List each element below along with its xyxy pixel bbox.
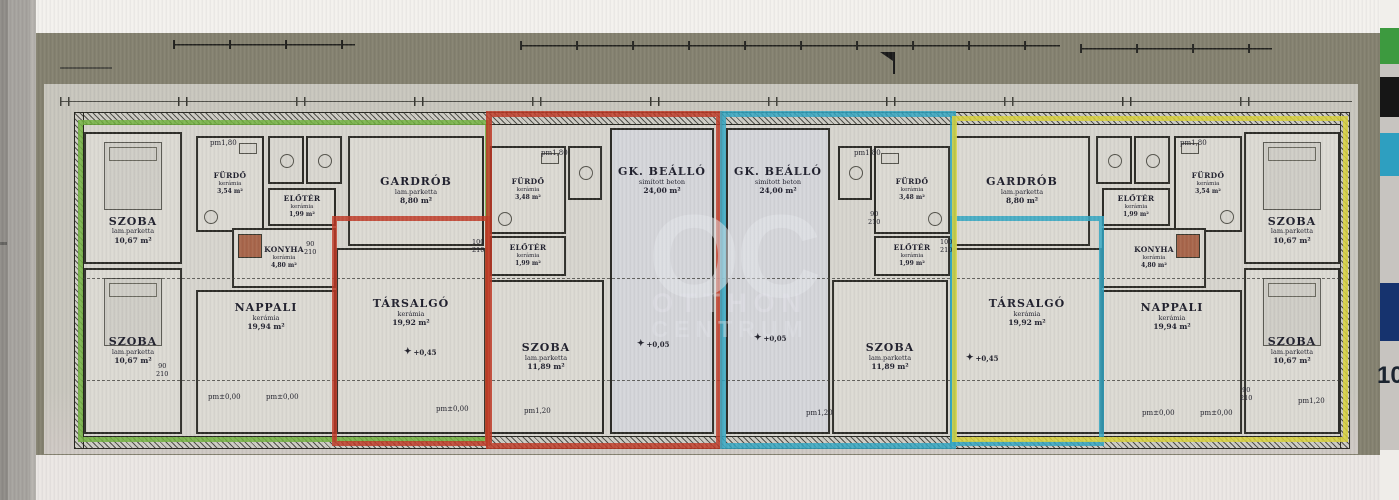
exterior-wall-bottom: [74, 436, 1350, 449]
room-name: GK. BEÁLLÓ: [618, 166, 706, 179]
level-label: pm1,80: [210, 140, 237, 147]
room-name: SZOBA: [1268, 336, 1316, 349]
room-eloter: ELŐTÉR kerámia 1,99 m²: [490, 236, 566, 276]
toilet-fixture: [928, 212, 942, 226]
room-floor: kerámia: [901, 253, 924, 260]
room-szoba: SZOBA lam.parketta 11,89 m²: [832, 280, 948, 434]
room-area: 8,80 m²: [1006, 196, 1038, 206]
level-marker: ✦ +0,45: [966, 354, 998, 363]
door-width: 100: [940, 238, 952, 246]
diamond-icon: ✦: [966, 354, 974, 363]
door-dimension: 90 210: [304, 240, 316, 256]
level-label: pm±0,00: [436, 406, 469, 413]
room-szoba: SZOBA lam.parketta 10,67 m²: [84, 268, 182, 434]
door-width: 90: [306, 240, 314, 248]
room-name: GARDRÓB: [986, 176, 1058, 189]
door-height: 210: [304, 248, 316, 256]
toilet-fixture: [1220, 210, 1234, 224]
room-konyha: KONYHA kerámia 4,80 m²: [1102, 228, 1206, 288]
door-height: 210: [472, 246, 484, 254]
room-name: SZOBA: [109, 336, 157, 349]
room-furdo: FÜRDŐ kerámia 3,54 m²: [1174, 136, 1242, 232]
room-area: 1,99 m²: [899, 260, 925, 268]
level-label: pm1,80: [1180, 140, 1207, 147]
level-label: pm1,20: [806, 410, 833, 417]
room-wc: [568, 146, 602, 200]
door-dimension: 100 210: [940, 238, 952, 254]
level-label: pm±0,00: [1142, 410, 1175, 417]
door-dimension: 90 210: [1240, 386, 1252, 402]
room-area: 10,67 m²: [1273, 236, 1310, 246]
dimension-line: [1080, 44, 1272, 53]
diamond-icon: ✦: [637, 340, 645, 349]
toilet-fixture: [849, 166, 863, 180]
room-name: NAPPALI: [235, 302, 298, 315]
door-dimension: 100 210: [472, 238, 484, 254]
room-tarsalgo: TÁRSALGÓ kerámia 19,92 m²: [952, 248, 1102, 434]
room-floor: lam.parketta: [1271, 349, 1313, 357]
toilet-fixture: [280, 154, 294, 168]
dimension-line: [173, 40, 355, 49]
room-area: 24,00 m²: [759, 186, 796, 196]
room-wc: [1134, 136, 1170, 184]
room-floor: simított beton: [639, 179, 685, 187]
room-floor: lam.parketta: [525, 355, 567, 363]
room-area: 24,00 m²: [643, 186, 680, 196]
level-value: +0,45: [976, 355, 999, 362]
door-width: 100: [472, 238, 484, 246]
level-label: pm±0,00: [1200, 410, 1233, 417]
level-label: pm±0,00: [266, 394, 299, 401]
door-dimension: 90 210: [868, 210, 880, 226]
thumbnail-teal[interactable]: [1380, 133, 1399, 176]
diamond-icon: ✦: [404, 348, 412, 357]
room-floor: kerámia: [1014, 311, 1041, 319]
room-area: 10,67 m²: [114, 236, 151, 246]
room-area: 1,99 m²: [515, 260, 541, 268]
room-szoba: SZOBA lam.parketta 10,67 m²: [1244, 132, 1340, 264]
edge-mark: [0, 242, 7, 245]
room-name: GK. BEÁLLÓ: [734, 166, 822, 179]
level-label: pm±0,00: [208, 394, 241, 401]
level-value: +0,05: [647, 341, 670, 348]
door-dimension: 90 210: [156, 362, 168, 378]
room-szoba: SZOBA lam.parketta 10,67 m²: [1244, 268, 1340, 434]
room-floor: kerámia: [517, 253, 540, 260]
stove-fixture: [1176, 234, 1200, 258]
room-floor: kerámia: [291, 204, 314, 211]
toilet-fixture: [1146, 154, 1160, 168]
level-marker: ✦ +0,05: [754, 334, 786, 343]
edge-block-white: [1380, 0, 1399, 28]
exterior-wall-left: [74, 112, 84, 449]
dimension-chain: [60, 97, 1352, 106]
level-label: pm1,80: [541, 150, 568, 157]
door-height: 210: [1240, 394, 1252, 402]
left-edge-strip: [0, 0, 36, 500]
room-floor: kerámia: [1143, 255, 1166, 262]
level-value: +0,05: [764, 335, 787, 342]
room-gardrob: GARDRÓB lam.parketta 8,80 m²: [954, 136, 1090, 246]
room-konyha: KONYHA kerámia 4,80 m²: [232, 228, 336, 288]
sink-fixture: [239, 143, 257, 154]
room-name: SZOBA: [522, 342, 570, 355]
room-floor: kerámia: [1159, 315, 1186, 323]
room-name: NAPPALI: [1141, 302, 1204, 315]
toilet-fixture: [579, 166, 593, 180]
section-line: [82, 278, 1340, 279]
section-marker-icon: [893, 52, 895, 74]
level-label: pm1,20: [1298, 398, 1325, 405]
room-area: 8,80 m²: [400, 196, 432, 206]
room-name: ELŐTÉR: [284, 195, 321, 204]
door-height: 210: [156, 370, 168, 378]
room-floor: kerámia: [517, 187, 540, 194]
room-area: 4,80 m²: [271, 262, 297, 270]
room-furdo: FÜRDŐ kerámia 3,54 m²: [196, 136, 264, 232]
room-area: 11,89 m²: [527, 362, 564, 372]
bed-furniture: [1263, 142, 1321, 210]
room-eloter: ELŐTÉR kerámia 1,99 m²: [1102, 188, 1170, 226]
room-floor: kerámia: [273, 255, 296, 262]
room-wc: [268, 136, 304, 184]
room-name: TÁRSALGÓ: [373, 298, 449, 311]
door-height: 210: [868, 218, 880, 226]
room-gardrob: GARDRÓB lam.parketta 8,80 m²: [348, 136, 484, 246]
diamond-icon: ✦: [754, 334, 762, 343]
room-floor: kerámia: [901, 187, 924, 194]
room-gk-beallo: GK. BEÁLLÓ simított beton 24,00 m²: [726, 128, 830, 434]
exterior-wall-top: [74, 112, 1350, 125]
stove-fixture: [238, 234, 262, 258]
room-floor: lam.parketta: [1271, 228, 1313, 236]
page-number: 10: [1377, 362, 1399, 390]
door-width: 90: [158, 362, 166, 370]
room-furdo: FÜRDŐ kerámia 3,48 m²: [874, 146, 950, 234]
sink-fixture: [881, 153, 899, 164]
room-floor: kerámia: [253, 315, 280, 323]
room-name: FÜRDŐ: [512, 178, 545, 187]
toilet-fixture: [1108, 154, 1122, 168]
toilet-fixture: [318, 154, 332, 168]
right-edge-strip: 10: [1380, 0, 1399, 500]
room-name: FÜRDŐ: [896, 178, 929, 187]
room-name: ELŐTÉR: [894, 244, 931, 253]
thumbnail-navy[interactable]: [1380, 283, 1399, 341]
room-area: 3,48 m²: [515, 194, 541, 202]
room-area: 10,67 m²: [114, 356, 151, 366]
room-area: 19,92 m²: [1008, 318, 1045, 328]
room-floor: simított beton: [755, 179, 801, 187]
floorplan-photo-screenshot: SZOBA lam.parketta 10,67 m² SZOBA lam.pa…: [0, 0, 1399, 500]
room-name: ELŐTÉR: [1118, 195, 1155, 204]
room-gk-beallo: GK. BEÁLLÓ simított beton 24,00 m²: [610, 128, 714, 434]
room-floor: kerámia: [398, 311, 425, 319]
room-name: FÜRDŐ: [1192, 172, 1225, 181]
room-floor: kerámia: [1125, 204, 1148, 211]
dimension-note: [60, 67, 112, 69]
room-area: 10,67 m²: [1273, 356, 1310, 366]
room-name: GARDRÓB: [380, 176, 452, 189]
room-szoba: SZOBA lam.parketta 10,67 m²: [84, 132, 182, 264]
room-eloter: ELŐTÉR kerámia 1,99 m²: [268, 188, 336, 226]
room-floor: lam.parketta: [395, 189, 437, 197]
edge-block-white: [1380, 450, 1399, 500]
room-area: 19,92 m²: [392, 318, 429, 328]
room-name: KONYHA: [264, 246, 304, 255]
room-name: SZOBA: [866, 342, 914, 355]
exterior-wall-right: [1340, 112, 1350, 449]
room-name: TÁRSALGÓ: [989, 298, 1065, 311]
room-name: ELŐTÉR: [510, 244, 547, 253]
thumbnail-black[interactable]: [1380, 77, 1399, 117]
section-line: [82, 380, 1340, 381]
room-floor: lam.parketta: [869, 355, 911, 363]
bed-furniture: [104, 142, 162, 210]
level-value: +0,45: [414, 349, 437, 356]
room-area: 3,48 m²: [899, 194, 925, 202]
room-wc: [306, 136, 342, 184]
room-area: 4,80 m²: [1141, 262, 1167, 270]
toilet-fixture: [498, 212, 512, 226]
room-floor: kerámia: [219, 181, 242, 188]
level-marker: ✦ +0,05: [637, 340, 669, 349]
room-name: FÜRDŐ: [214, 172, 247, 181]
room-furdo: FÜRDŐ kerámia 3,48 m²: [490, 146, 566, 234]
page-bottom-margin: [36, 455, 1399, 500]
door-width: 90: [1242, 386, 1250, 394]
room-nappali: NAPPALI kerámia 19,94 m²: [196, 290, 336, 434]
level-label: pm1,20: [524, 408, 551, 415]
room-floor: lam.parketta: [112, 228, 154, 236]
level-marker: ✦ +0,45: [404, 348, 436, 357]
room-wc: [1096, 136, 1132, 184]
level-label: pm1,80: [854, 150, 881, 157]
room-area: 3,54 m²: [1195, 188, 1221, 196]
thumbnail-green[interactable]: [1380, 28, 1399, 64]
room-area: 19,94 m²: [247, 322, 284, 332]
room-floor: lam.parketta: [112, 349, 154, 357]
door-width: 90: [870, 210, 878, 218]
room-floor: kerámia: [1197, 181, 1220, 188]
door-height: 210: [940, 246, 952, 254]
room-area: 3,54 m²: [217, 188, 243, 196]
room-area: 11,89 m²: [871, 362, 908, 372]
room-area: 1,99 m²: [1123, 211, 1149, 219]
dimension-line: [520, 41, 1060, 50]
room-name: KONYHA: [1134, 246, 1174, 255]
room-eloter: ELŐTÉR kerámia 1,99 m²: [874, 236, 950, 276]
room-area: 1,99 m²: [289, 211, 315, 219]
room-floor: lam.parketta: [1001, 189, 1043, 197]
room-area: 19,94 m²: [1153, 322, 1190, 332]
toilet-fixture: [204, 210, 218, 224]
page-top-margin: [36, 0, 1380, 33]
